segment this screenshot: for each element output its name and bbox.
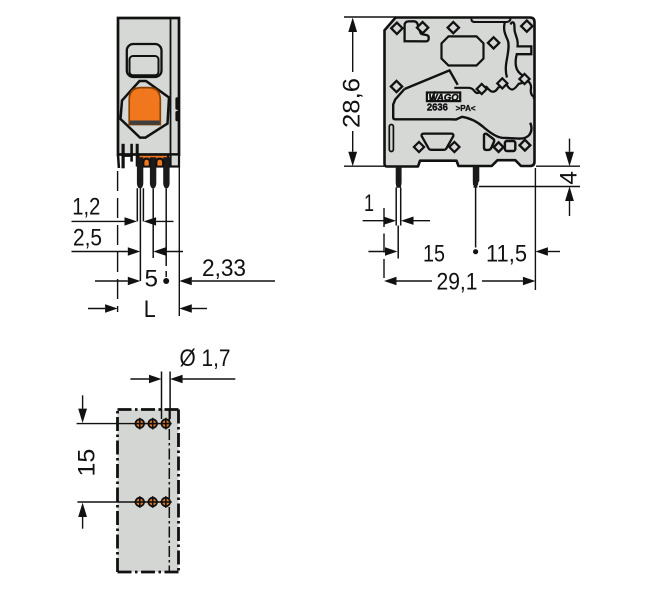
- svg-text:1: 1: [364, 190, 374, 217]
- svg-text:2,5: 2,5: [73, 225, 102, 252]
- svg-text:>PA<: >PA<: [456, 103, 476, 113]
- svg-text:L: L: [144, 296, 156, 323]
- svg-text:29,1: 29,1: [437, 269, 478, 296]
- svg-text:2,33: 2,33: [202, 255, 246, 282]
- svg-text:Ø 1,7: Ø 1,7: [180, 345, 231, 372]
- svg-text:5: 5: [145, 266, 159, 293]
- svg-text:4: 4: [555, 171, 582, 185]
- svg-text:1,2: 1,2: [72, 194, 100, 221]
- svg-text:28,6: 28,6: [338, 78, 365, 128]
- svg-text:11,5: 11,5: [486, 240, 527, 267]
- svg-text:15: 15: [423, 240, 445, 267]
- svg-text:15: 15: [74, 449, 101, 477]
- svg-text:2636: 2636: [427, 102, 448, 113]
